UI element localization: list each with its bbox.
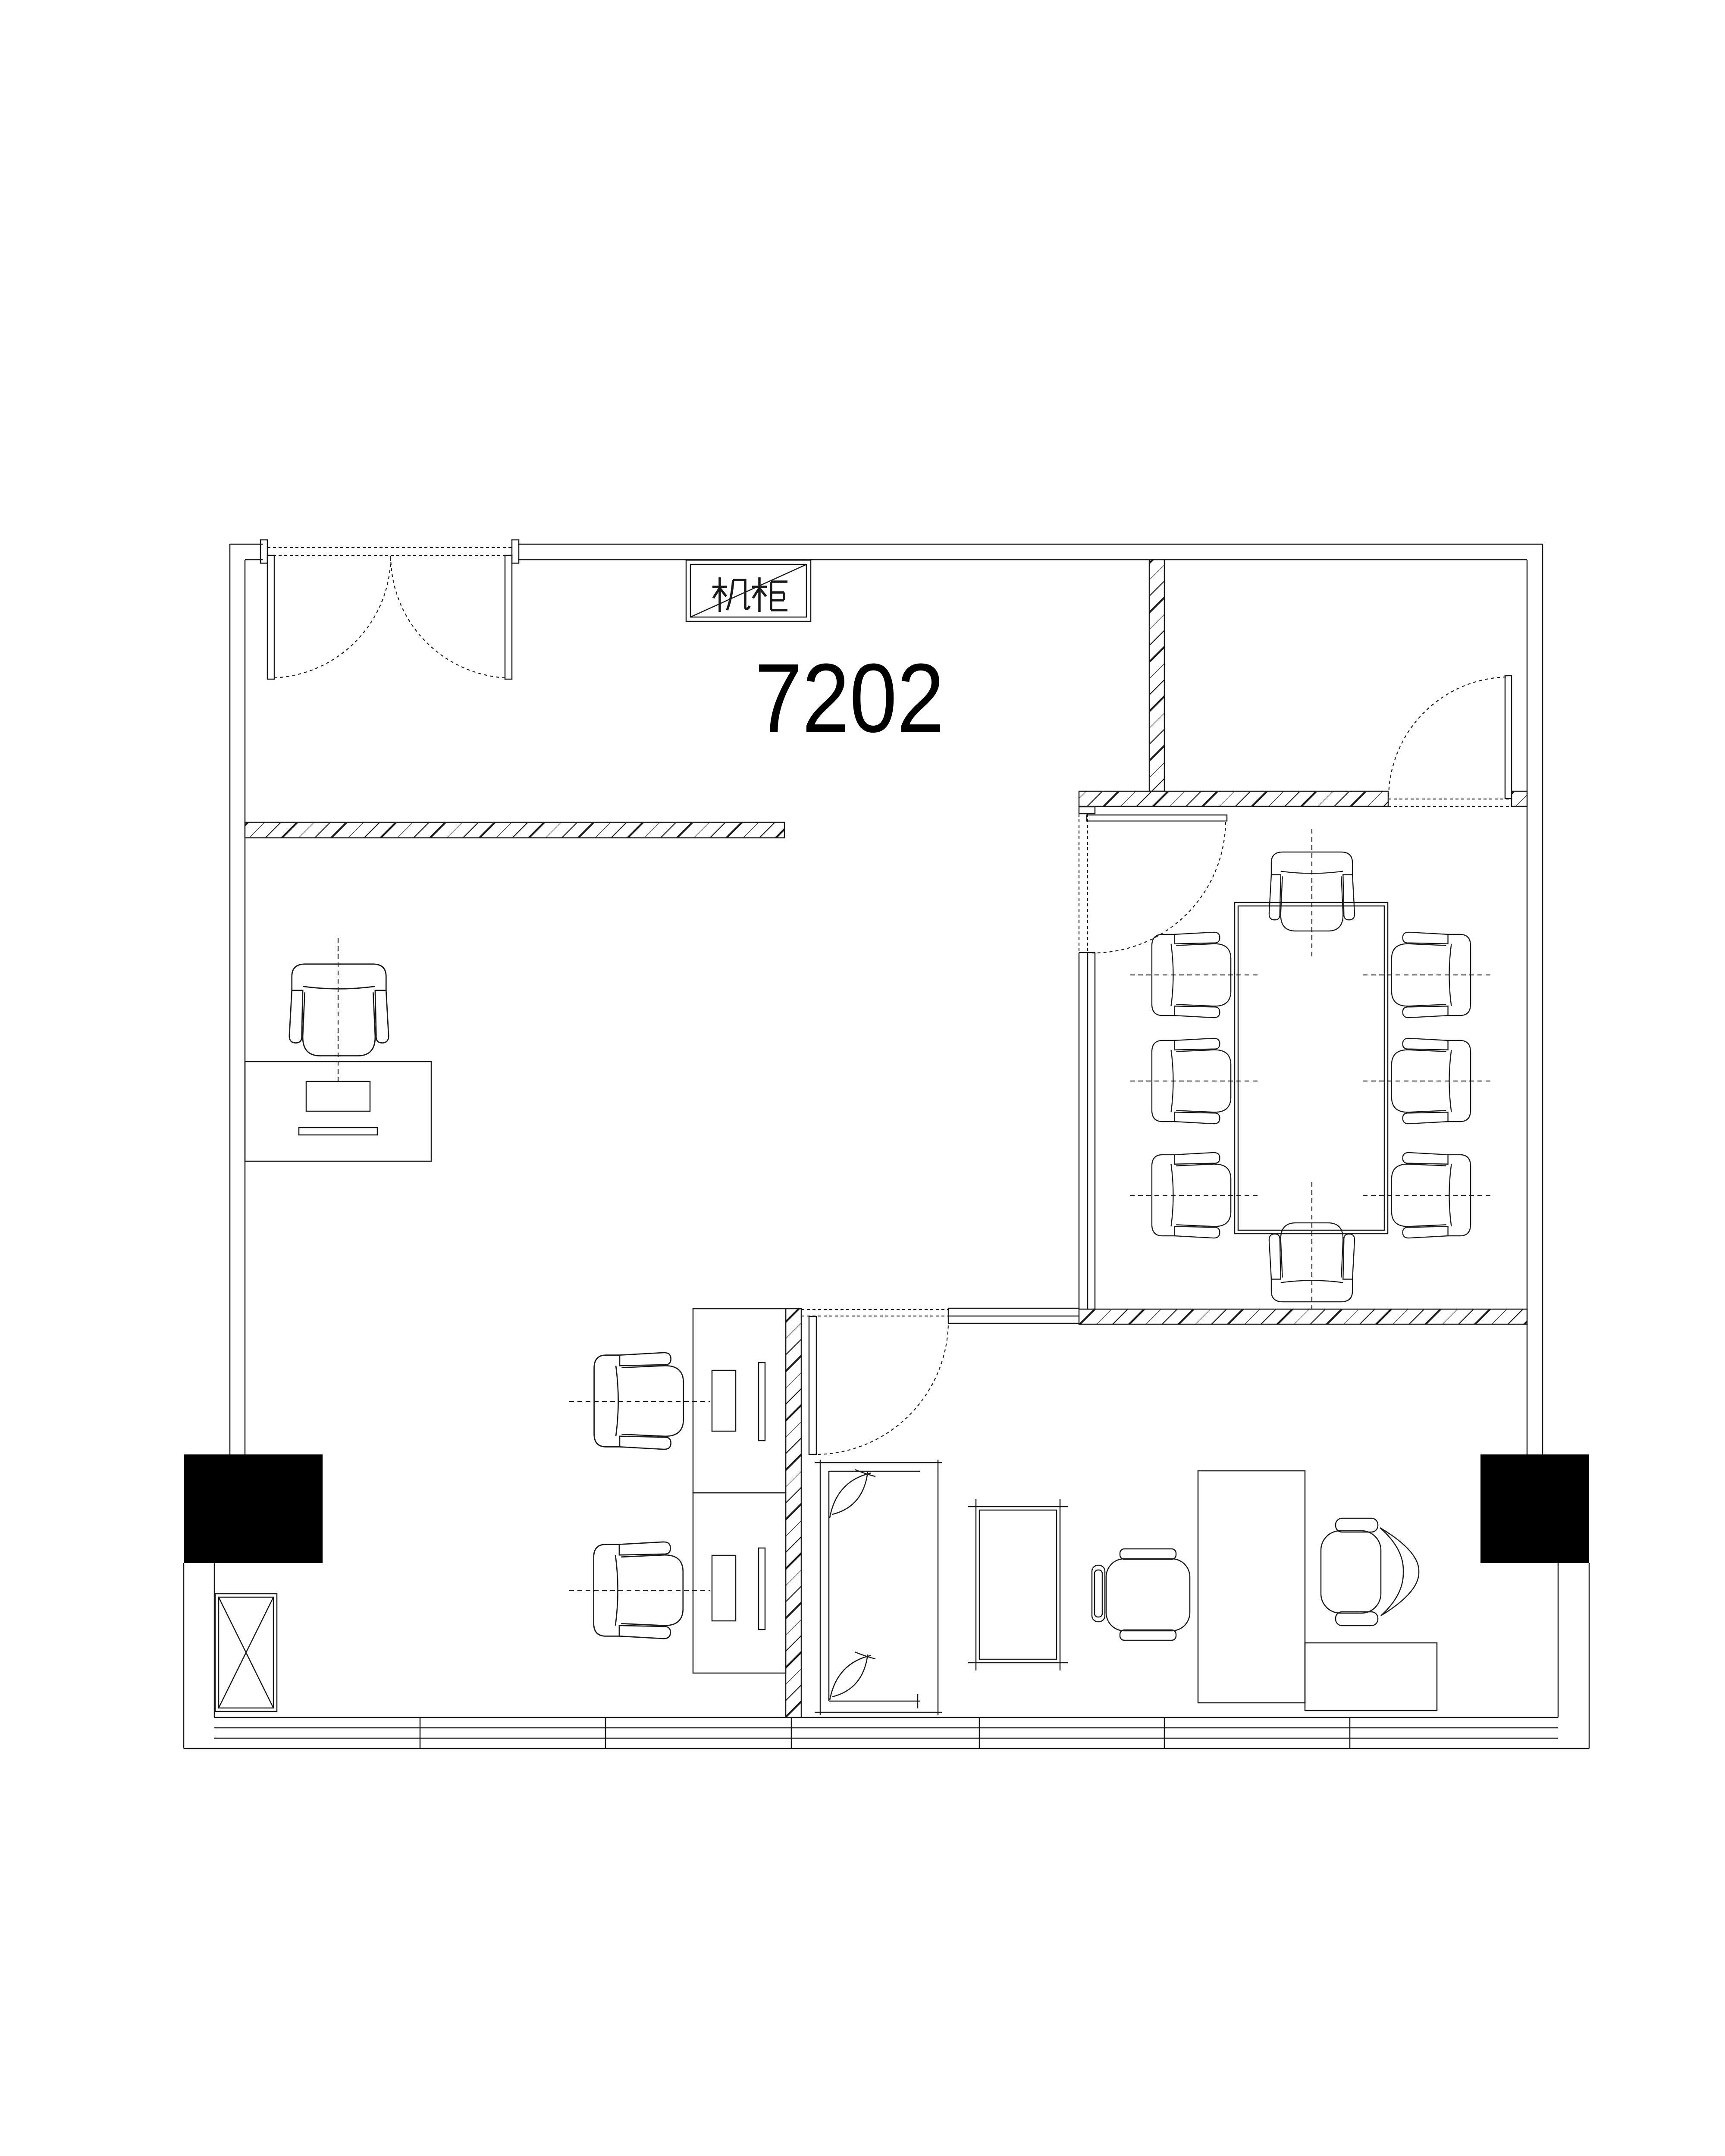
svg-text:7202: 7202: [755, 644, 944, 753]
